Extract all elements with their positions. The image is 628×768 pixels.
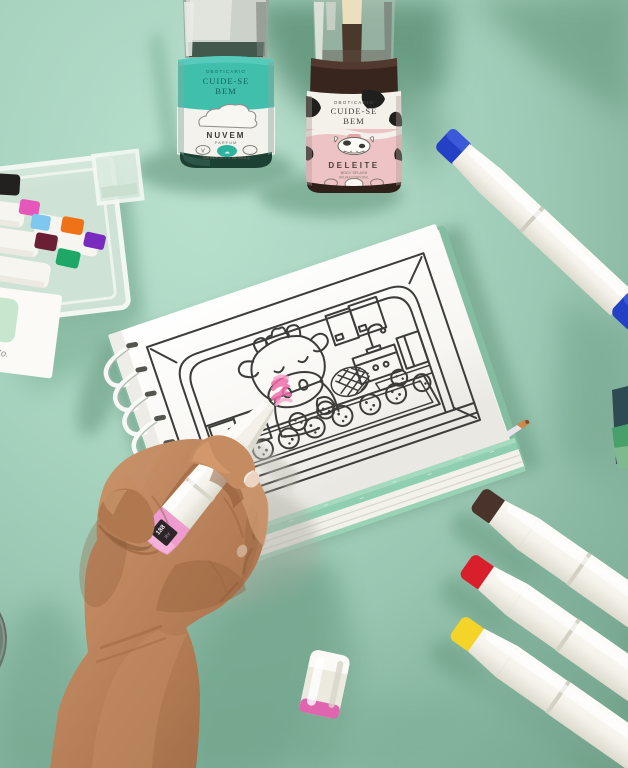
svg-text:CUIDE-SE: CUIDE-SE <box>203 76 250 86</box>
svg-text:BODY SPLASH: BODY SPLASH <box>341 171 368 175</box>
svg-text:V: V <box>201 149 205 155</box>
svg-text:DELEITE: DELEITE <box>328 161 379 170</box>
svg-text:OBOTICARIO: OBOTICARIO <box>334 100 374 105</box>
svg-text:300 ml e 10.1 fl. oz. 83.8 g: 300 ml e 10.1 fl. oz. 83.8 g <box>202 155 249 160</box>
svg-text:PARFUM: PARFUM <box>215 140 238 145</box>
svg-text:BEM: BEM <box>343 116 364 126</box>
svg-text:NUVEM: NUVEM <box>207 131 246 140</box>
svg-text:CUIDE-SE: CUIDE-SE <box>331 106 378 116</box>
svg-text:OBOTICARIO: OBOTICARIO <box>206 69 246 74</box>
svg-text:BEM: BEM <box>215 86 236 96</box>
